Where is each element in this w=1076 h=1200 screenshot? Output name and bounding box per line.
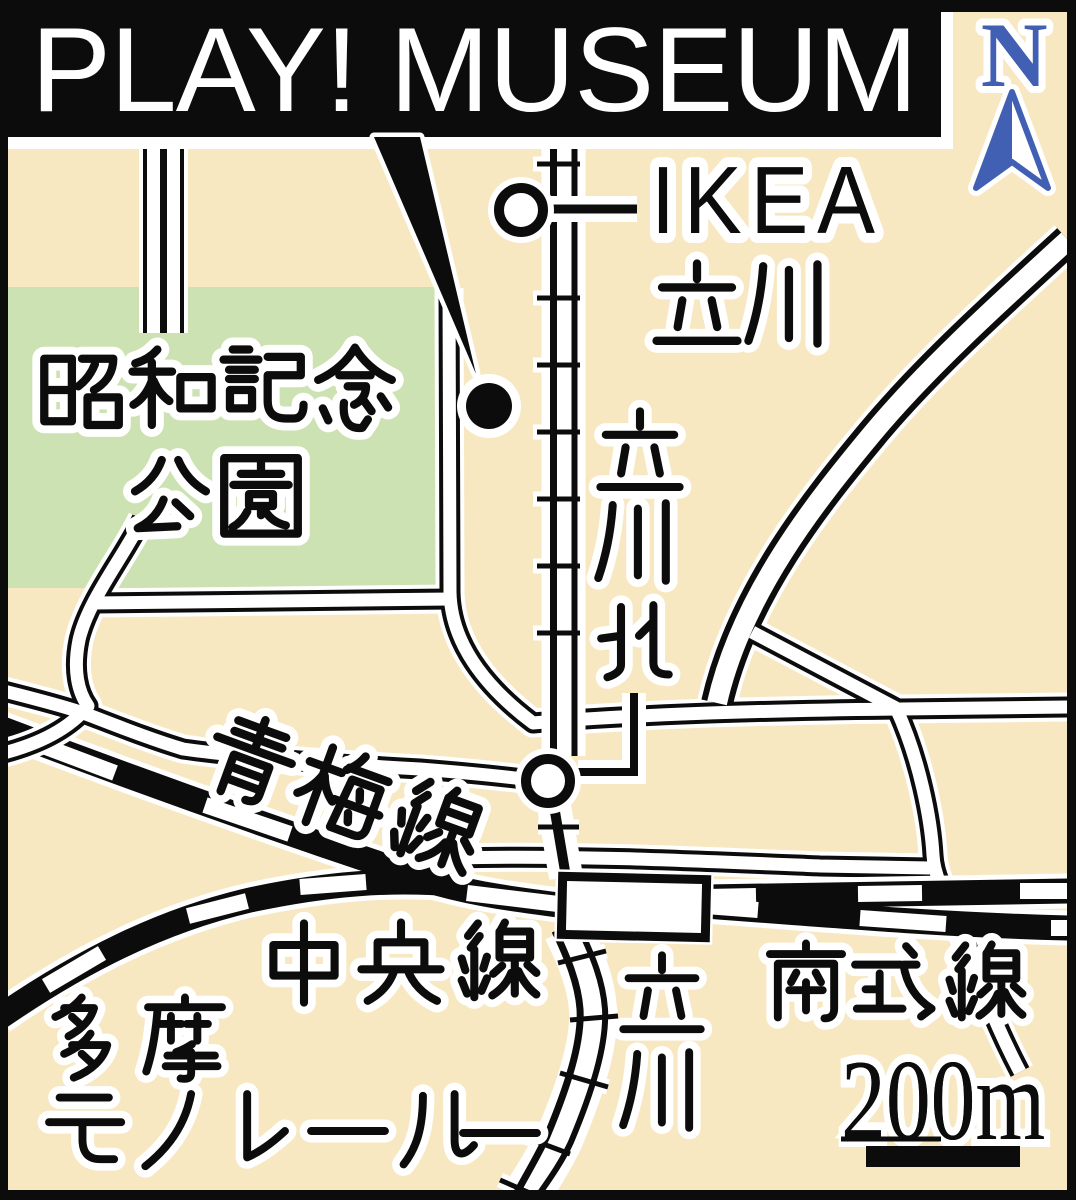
svg-text:IKEA: IKEA [651, 147, 884, 254]
svg-text:PLAY! MUSEUM: PLAY! MUSEUM [31, 3, 917, 137]
svg-text:200m: 200m [841, 1038, 1045, 1165]
